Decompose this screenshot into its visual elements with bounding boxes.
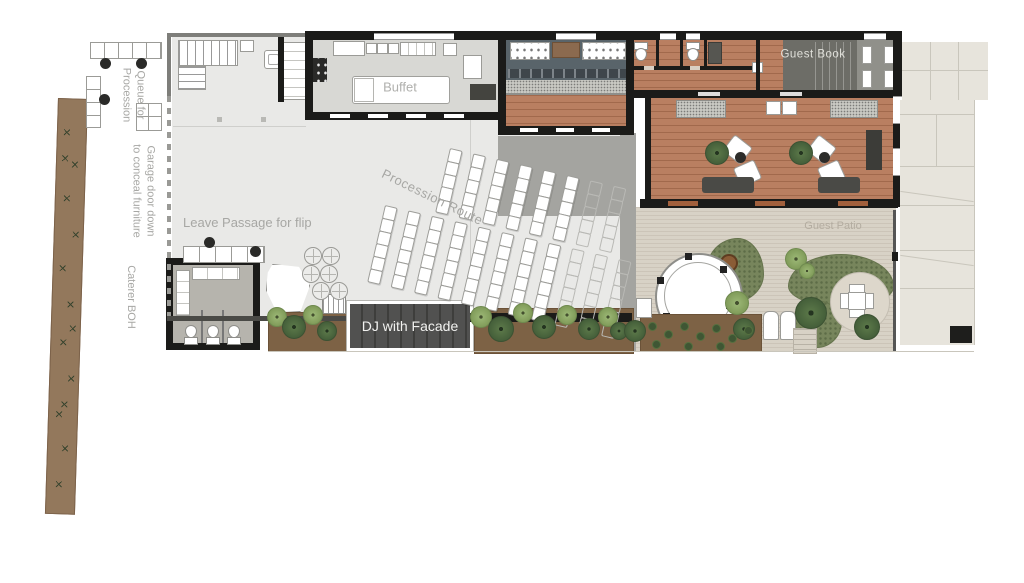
kitchen-doorway — [470, 84, 496, 100]
vestibule-door — [862, 46, 872, 64]
garage-door-wall — [167, 96, 171, 318]
plant — [795, 297, 827, 329]
queue-bench-row — [90, 42, 162, 59]
cocktail-table — [320, 265, 338, 283]
gazebo-post — [685, 253, 692, 260]
bed-shrub — [728, 334, 737, 343]
plant — [789, 141, 813, 165]
cocktail-table — [312, 282, 330, 300]
label-dj-facade: DJ with Facade — [362, 317, 458, 335]
console-table — [830, 100, 878, 118]
driveway-joint — [900, 288, 974, 289]
driveway-joint — [900, 250, 974, 251]
garden-lounger — [763, 311, 779, 340]
bar-guest-floor — [504, 95, 628, 128]
bar-glass-rack — [552, 42, 580, 58]
toilet — [634, 42, 646, 60]
strip-sprig — [67, 301, 73, 307]
label-line: Garage door down — [144, 145, 156, 236]
label-queue-for-procession: Queue for Procession — [119, 68, 148, 122]
bed-shrub — [648, 322, 657, 331]
window-gap — [444, 114, 464, 118]
kitchen-counter — [333, 41, 365, 56]
floor-drain — [217, 117, 222, 122]
bar-bottle-shelf — [582, 42, 626, 60]
label-garage-door: Garage door down to conceal furniture — [129, 144, 158, 238]
round-table — [819, 152, 830, 163]
prep-table — [400, 42, 436, 56]
buffet-island-cap — [354, 78, 374, 102]
strip-sprig — [61, 401, 67, 407]
window-gap — [374, 33, 454, 40]
strip-sprig — [56, 411, 62, 417]
fence-post — [892, 252, 898, 261]
strip-sprig — [73, 232, 79, 238]
toilet — [206, 324, 218, 343]
strip-sprig — [72, 161, 78, 167]
bar-equipment-row — [508, 69, 626, 78]
utility-box — [950, 326, 972, 343]
bed-shrub — [664, 330, 673, 339]
window-gap — [406, 114, 426, 118]
plant — [799, 263, 815, 279]
label-line: to conceal furniture — [130, 144, 142, 238]
plant — [513, 303, 533, 323]
bar-bottle-shelf — [510, 42, 550, 60]
driveway-joint — [900, 166, 974, 167]
bed-shrub — [716, 342, 725, 351]
kitchen-appliance — [443, 43, 457, 56]
toilet — [686, 42, 698, 60]
toilet-tank — [184, 337, 198, 345]
window-gap — [592, 128, 610, 132]
cocktail-table — [302, 265, 320, 283]
plant — [317, 321, 337, 341]
floor-seam — [173, 126, 306, 127]
window-gap — [368, 114, 388, 118]
plant — [282, 315, 306, 339]
terracotta-door — [755, 201, 785, 206]
strip-sprig — [64, 195, 70, 201]
label-buffet: Buffet — [383, 80, 417, 97]
curb-line — [268, 351, 974, 352]
cocktail-table — [322, 247, 340, 265]
stall-partition — [704, 38, 707, 66]
label-caterer-boh: Caterer BOH — [124, 265, 138, 329]
bed-shrub — [744, 326, 753, 335]
plant — [624, 320, 646, 342]
toilet-bowl — [687, 48, 699, 61]
queue-table-dot — [100, 58, 111, 69]
label-guest-patio: Guest Patio — [804, 219, 861, 233]
caterer-counter — [176, 270, 190, 316]
side-table — [782, 101, 797, 115]
bed-shrub — [684, 342, 693, 351]
window-gap — [520, 128, 538, 132]
stall-partition — [222, 310, 224, 343]
console-table — [676, 100, 726, 118]
kitchen-appliance — [366, 43, 377, 54]
strip-sprig — [68, 375, 74, 381]
queue-table-dot — [250, 246, 261, 257]
plant — [725, 291, 749, 315]
driveway-joint — [936, 114, 937, 167]
wall — [626, 33, 634, 135]
garden-fence — [893, 210, 896, 352]
street-planter-strip — [45, 98, 88, 515]
pantry — [281, 42, 308, 100]
wall-thin — [167, 33, 171, 96]
wall — [305, 33, 313, 119]
sofa — [818, 177, 860, 193]
driveway-joint — [900, 205, 974, 206]
terracotta-door — [838, 201, 868, 206]
bed-shrub — [652, 340, 661, 349]
sidewalk-joint — [902, 70, 988, 71]
plant — [854, 314, 880, 340]
floor-plan: Queue for Procession Garage door down to… — [0, 0, 1024, 583]
wall — [756, 38, 760, 92]
strip-sprig — [60, 265, 66, 271]
window-gap — [686, 33, 700, 40]
driveway-joint — [900, 114, 974, 115]
toilet-bowl — [635, 48, 647, 61]
wall — [645, 95, 651, 207]
vanity — [708, 42, 722, 64]
wall-thin — [167, 33, 307, 37]
bed-shrub — [696, 332, 705, 341]
stove — [313, 58, 327, 82]
toilet — [184, 324, 196, 343]
vestibule-door — [862, 70, 872, 88]
fireplace — [866, 130, 882, 170]
label-line: Queue for — [134, 71, 146, 120]
caterer-sink-counter — [192, 267, 240, 280]
sidewalk-joint — [930, 42, 931, 100]
strip-sprig — [56, 481, 62, 487]
cocktail-table — [304, 247, 322, 265]
cocktail-table — [330, 282, 348, 300]
window-gap — [330, 114, 350, 118]
side-table — [766, 101, 781, 115]
queue-table-dot — [204, 237, 215, 248]
strip-sprig — [62, 155, 68, 161]
queue-table-dot — [99, 94, 110, 105]
stall-partition — [656, 38, 659, 66]
toilet — [227, 324, 239, 343]
window-gap — [660, 33, 676, 40]
round-table — [735, 152, 746, 163]
plant — [705, 141, 729, 165]
stall-partition — [201, 310, 203, 343]
plant — [578, 318, 600, 340]
floor-drain — [261, 117, 266, 122]
sofa — [702, 177, 754, 193]
bed-shrub — [712, 324, 721, 333]
plant — [532, 315, 556, 339]
window-gap — [556, 128, 574, 132]
stairs-upper-run — [178, 40, 238, 66]
terracotta-door — [668, 201, 698, 206]
window-gap — [864, 33, 886, 40]
wall — [632, 90, 898, 98]
toilet-tank — [206, 337, 220, 345]
driveway — [900, 100, 975, 345]
cross-table-center — [848, 292, 866, 310]
strip-sprig — [70, 325, 76, 331]
window-gap — [698, 92, 720, 96]
plant — [488, 316, 514, 342]
label-guest-book: Guest Book — [780, 48, 845, 63]
gazebo-post — [720, 266, 727, 273]
door-gap — [690, 66, 700, 70]
stall-partition — [680, 38, 683, 66]
kitchen-appliance — [377, 43, 388, 54]
plant — [557, 305, 577, 325]
wall — [278, 36, 284, 102]
toilet-tank — [227, 337, 241, 345]
garden-planter-box — [636, 298, 652, 318]
window-gap — [556, 33, 596, 40]
wall — [498, 33, 506, 129]
label-leave-passage: Leave Passage for flip — [183, 215, 312, 232]
sidewalk — [902, 42, 988, 100]
strip-sprig — [62, 445, 68, 451]
strip-sprig — [60, 339, 66, 345]
window-gap — [780, 92, 802, 96]
label-line: Procession — [120, 68, 132, 122]
door-gap — [644, 66, 654, 70]
sidewalk-joint — [958, 42, 959, 100]
kitchen-cabinet — [463, 55, 482, 79]
kitchen-appliance — [388, 43, 399, 54]
bed-shrub — [680, 322, 689, 331]
stairs-return-run — [178, 66, 206, 90]
hall-fixture — [240, 40, 254, 52]
bar-counter — [504, 80, 628, 95]
strip-sprig — [64, 129, 70, 135]
gazebo-post — [657, 277, 664, 284]
